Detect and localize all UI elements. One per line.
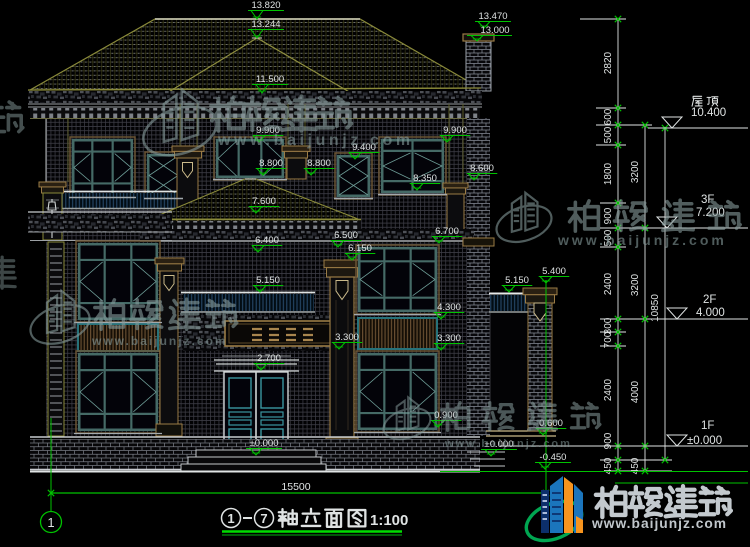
svg-text:700: 700 <box>603 331 614 348</box>
svg-text:7.600: 7.600 <box>252 196 276 207</box>
svg-text:9.900: 9.900 <box>443 125 467 136</box>
svg-text:±0.000: ±0.000 <box>687 435 722 447</box>
svg-text:8.800: 8.800 <box>259 158 283 169</box>
svg-text:3.300: 3.300 <box>437 333 461 344</box>
svg-text:7.200: 7.200 <box>696 207 725 219</box>
svg-text:11.500: 11.500 <box>256 74 284 85</box>
svg-text:www.baijunjz.com: www.baijunjz.com <box>557 232 727 248</box>
svg-text:2400: 2400 <box>603 272 614 295</box>
svg-text:±0.000: ±0.000 <box>250 438 279 449</box>
svg-text:8.350: 8.350 <box>413 173 437 184</box>
svg-text:13.244: 13.244 <box>251 19 280 30</box>
svg-text:900: 900 <box>603 432 614 449</box>
svg-text:1: 1 <box>47 515 54 530</box>
svg-text:2820: 2820 <box>603 51 614 74</box>
svg-text:5.150: 5.150 <box>256 275 280 286</box>
svg-text:6.700: 6.700 <box>435 226 459 237</box>
svg-text:1: 1 <box>227 511 234 526</box>
svg-text:600: 600 <box>603 108 614 125</box>
svg-text:10850: 10850 <box>650 294 661 322</box>
svg-text:5.150: 5.150 <box>505 275 529 286</box>
svg-text:1800: 1800 <box>603 162 614 185</box>
svg-text:13.000: 13.000 <box>480 25 509 36</box>
svg-text:www.baijunjz.com: www.baijunjz.com <box>591 516 727 531</box>
svg-text:www.baijunjz.com: www.baijunjz.com <box>444 438 572 450</box>
svg-text:500: 500 <box>603 126 614 143</box>
svg-text:7: 7 <box>260 511 267 526</box>
svg-text:13.820: 13.820 <box>251 0 280 11</box>
svg-text:3.300: 3.300 <box>335 332 359 343</box>
svg-text:1:100: 1:100 <box>370 512 408 529</box>
svg-text:900: 900 <box>603 207 614 224</box>
svg-text:www.baijunjz.com: www.baijunjz.com <box>217 132 414 149</box>
svg-text:2.700: 2.700 <box>257 353 281 364</box>
svg-text:4000: 4000 <box>630 380 641 403</box>
svg-text:6.150: 6.150 <box>348 243 372 254</box>
svg-text:6.400: 6.400 <box>255 235 279 246</box>
svg-text:2F: 2F <box>703 294 716 306</box>
svg-text:4.300: 4.300 <box>437 302 461 313</box>
svg-text:3200: 3200 <box>630 273 641 296</box>
svg-text:3200: 3200 <box>630 160 641 183</box>
svg-text:www.baijunjz.com: www.baijunjz.com <box>91 334 228 348</box>
svg-text:-0.450: -0.450 <box>540 452 567 463</box>
svg-text:10.400: 10.400 <box>691 107 726 119</box>
svg-text:1F: 1F <box>701 420 714 432</box>
svg-text:5.400: 5.400 <box>542 266 566 277</box>
svg-text:2400: 2400 <box>603 378 614 401</box>
svg-text:4.000: 4.000 <box>696 307 725 319</box>
svg-text:6.500: 6.500 <box>334 230 358 241</box>
svg-text:8.800: 8.800 <box>307 158 331 169</box>
svg-text:13.470: 13.470 <box>478 11 507 22</box>
svg-text:8.600: 8.600 <box>470 163 494 174</box>
svg-text:15500: 15500 <box>281 481 310 493</box>
